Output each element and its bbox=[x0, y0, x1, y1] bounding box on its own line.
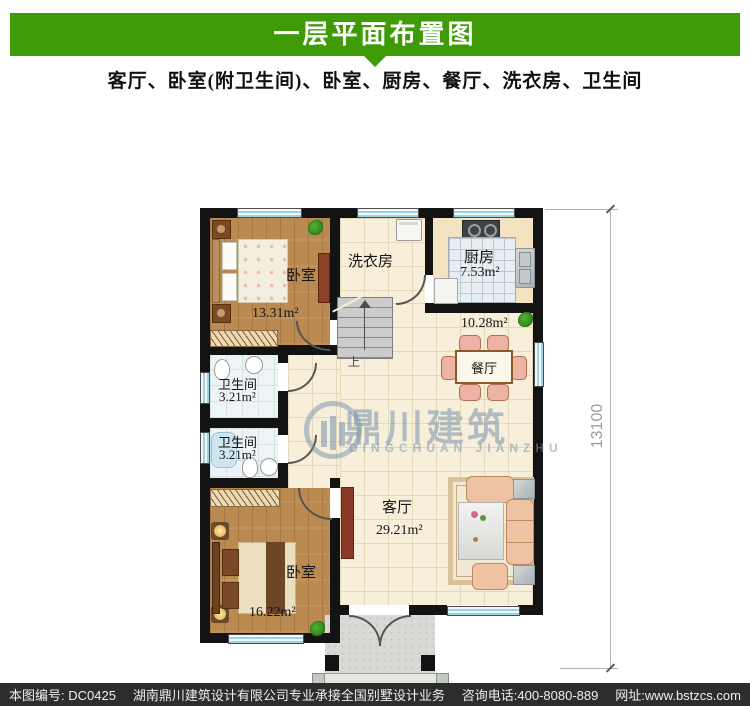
nightstand-icon bbox=[212, 220, 231, 239]
kitchen-sink-icon bbox=[515, 248, 535, 288]
bathroom-lower-area: 3.21m² bbox=[219, 447, 256, 463]
wall-south-living-b bbox=[409, 605, 447, 615]
washing-machine-icon bbox=[396, 219, 422, 241]
bathroom-upper-area: 3.21m² bbox=[219, 389, 256, 405]
window-dining-east bbox=[534, 342, 544, 387]
double-bed-icon bbox=[212, 239, 288, 303]
wall-bath-east-b bbox=[278, 391, 288, 435]
washbasin-icon bbox=[260, 458, 278, 476]
stove-icon bbox=[462, 220, 500, 238]
tv-cabinet-icon bbox=[341, 487, 354, 559]
wardrobe-icon bbox=[210, 330, 278, 347]
bedroom-top-area: 13.31m² bbox=[252, 306, 299, 322]
tv-board-icon bbox=[318, 253, 330, 303]
floor-plan-page: 一层平面布置图 客厅、卧室(附卫生间)、卧室、厨房、餐厅、洗衣房、卫生间 bbox=[0, 0, 750, 706]
porch-post-left bbox=[325, 655, 339, 671]
bedside-lamp-icon bbox=[211, 522, 229, 540]
window-kitchen bbox=[453, 208, 515, 218]
dining-chair-icon bbox=[511, 356, 527, 380]
armchair-icon bbox=[472, 563, 508, 590]
bedroom-bottom-area: 16.22m² bbox=[249, 605, 296, 621]
window-bedroom-bottom bbox=[228, 634, 304, 644]
dim-depth-value: 13100 bbox=[589, 396, 607, 456]
coffee-table-icon bbox=[458, 502, 504, 560]
dining-area: 10.28m² bbox=[461, 316, 508, 332]
phone-number: 咨询电话:400-8080-889 bbox=[462, 685, 599, 704]
dining-table-icon: 餐厅 bbox=[455, 350, 513, 384]
bedroom-top-label: 卧室 bbox=[286, 264, 316, 285]
bedroom-bottom-label: 卧室 bbox=[286, 561, 316, 582]
kitchen-label: 厨房 bbox=[464, 246, 494, 267]
plan-number: 本图编号: DC0425 bbox=[9, 685, 116, 704]
wall-bath-east-a bbox=[278, 345, 288, 363]
wardrobe-icon bbox=[210, 489, 280, 507]
wall-kitchen-west bbox=[425, 208, 433, 275]
nightstand-icon bbox=[212, 304, 231, 323]
stairs-up-label: 上 bbox=[348, 353, 360, 370]
wall-bedroom-bottom-east-a bbox=[330, 478, 340, 488]
window-bathroom-lower bbox=[200, 432, 210, 464]
sofa-icon bbox=[466, 476, 514, 503]
wall-bath-divider bbox=[200, 418, 288, 428]
footer-bar: 本图编号: DC0425 湖南鼎川建筑设计有限公司专业承接全国别墅设计业务 咨询… bbox=[0, 683, 750, 706]
title-banner: 一层平面布置图 bbox=[10, 13, 740, 56]
double-bed-icon bbox=[212, 542, 296, 614]
window-bedroom-top bbox=[237, 208, 302, 218]
website-url: 网址:www.bstzcs.com bbox=[615, 685, 741, 704]
living-label: 客厅 bbox=[382, 496, 412, 517]
room-list-subtitle: 客厅、卧室(附卫生间)、卧室、厨房、餐厅、洗衣房、卫生间 bbox=[0, 66, 750, 93]
window-laundry bbox=[357, 208, 419, 218]
window-living-south bbox=[447, 606, 520, 616]
laundry-label: 洗衣房 bbox=[348, 250, 393, 271]
wall-south-living-a bbox=[340, 605, 349, 615]
fridge-icon bbox=[434, 278, 458, 304]
living-area: 29.21m² bbox=[376, 523, 423, 539]
watermark-en-text: DINGCHUAN JIANZHU bbox=[349, 441, 563, 455]
wall-bath-lower-south bbox=[200, 478, 288, 488]
wall-south-living-c bbox=[518, 605, 543, 615]
kitchen-area: 7.53m² bbox=[460, 265, 500, 281]
dim-line-depth bbox=[610, 209, 611, 668]
sofa-icon bbox=[506, 499, 534, 565]
side-table-icon bbox=[513, 479, 535, 499]
side-table-icon bbox=[513, 565, 535, 585]
floor-plan: 上 bbox=[0, 95, 750, 680]
stairs-icon bbox=[337, 297, 393, 359]
wall-bedroom-bottom-east-b bbox=[330, 518, 340, 643]
porch-post-right bbox=[421, 655, 435, 671]
stairs-arrow-shaft bbox=[364, 306, 365, 350]
stairs-arrow-head bbox=[359, 300, 371, 308]
dining-room-label: 餐厅 bbox=[471, 358, 497, 377]
company-name: 湖南鼎川建筑设计有限公司专业承接全国别墅设计业务 bbox=[133, 685, 445, 704]
washbasin-icon bbox=[245, 356, 263, 374]
window-bathroom-upper bbox=[200, 372, 210, 404]
